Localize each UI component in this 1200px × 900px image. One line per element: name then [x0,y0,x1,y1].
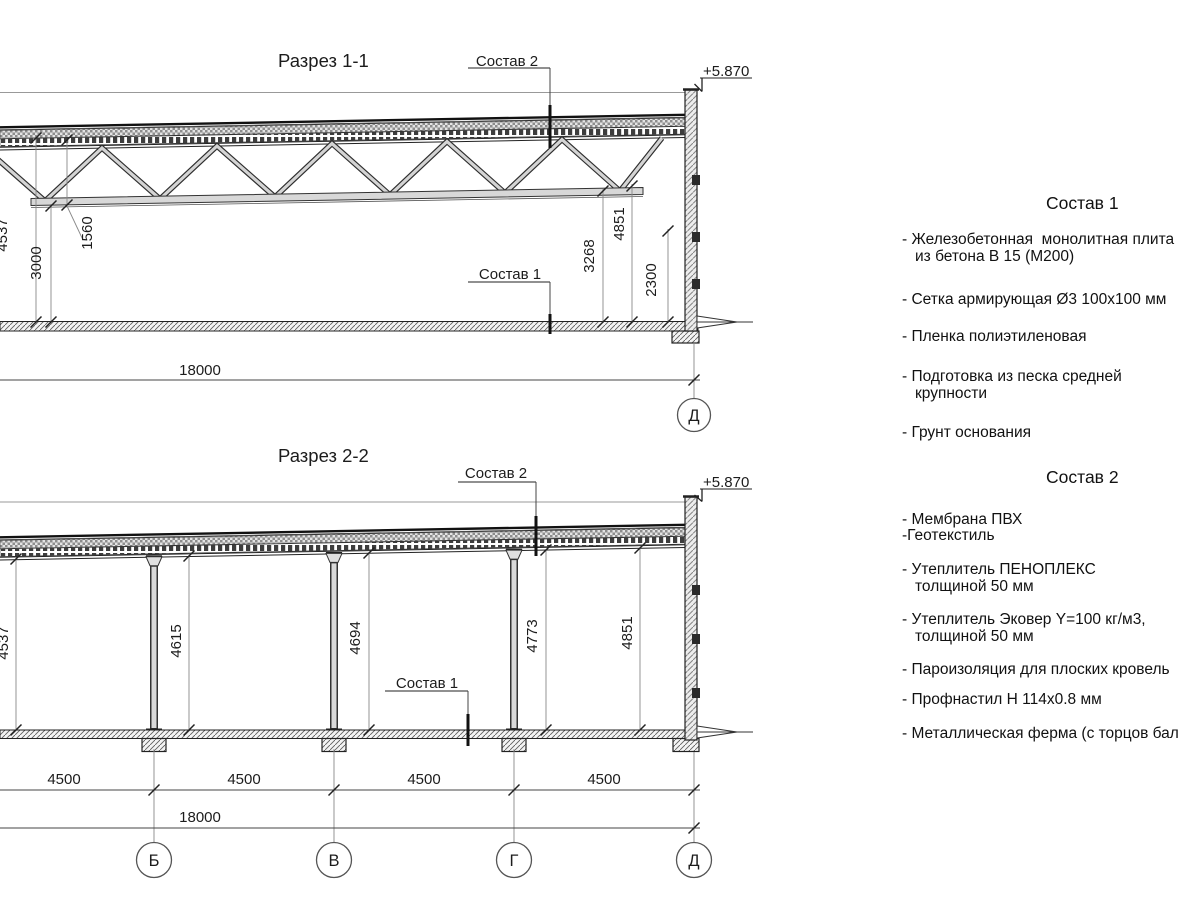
right-wall [683,497,753,741]
column-v [326,553,342,730]
composition-1-item: - Пленка полиэтиленовая [902,329,1087,346]
dim-4615: 4615 [168,624,185,657]
svg-text:Д: Д [688,407,699,425]
wall-panel-joint [692,634,700,644]
composition-2-title: Состав 2 [1046,467,1119,488]
extension-lines [16,547,694,843]
composition-1-item: - Подготовка из песка средней крупности [902,369,1122,402]
section-2-2: Состав 2 Состав 1 +5.870 [0,445,753,878]
sections-drawing-canvas: Состав 2 Состав 1 +5.870 [0,0,1200,900]
svg-text:Д: Д [688,852,699,870]
dim-span-3: 4500 [407,771,440,788]
roof-assembly [0,115,685,150]
composition-2-item: - Утеплитель Эковер Y=100 кг/м3, толщино… [902,612,1146,645]
composition-1-item: - Сетка армирующая Ø3 100х100 мм [902,292,1166,309]
roof-assembly [0,525,685,560]
floor-slab [0,322,699,344]
composition-1-item: - Грунт основания [902,425,1031,442]
composition-1-title: Состав 1 [1046,193,1119,214]
composition-2-item: - Металлическая ферма (с торцов бал [902,726,1179,743]
sostav2-label: Состав 2 [476,53,538,70]
dim-4537: 4537 [0,218,11,251]
axis-bubble-g: Г [497,843,532,878]
wall-panel-joint [692,175,700,185]
composition-1-item: - Железобетонная монолитная плита из бет… [902,232,1174,265]
sostav1-label: Состав 1 [396,675,458,692]
right-wall [683,90,753,332]
svg-text:Г: Г [510,852,519,870]
composition-2-item: -Геотекстиль [902,528,995,545]
elevation-mark: +5.870 [695,63,753,92]
dim-18000: 18000 [179,362,221,379]
elevation-value: +5.870 [703,63,749,80]
axis-bubble-b: Б [137,843,172,878]
wall-panel-joint [692,585,700,595]
svg-text:В: В [328,852,339,870]
composition-2-item: - Утеплитель ПЕНОПЛЕКС толщиной 50 мм [902,562,1096,595]
column-g [506,550,522,730]
dim-4851: 4851 [611,207,628,240]
dim-4773: 4773 [524,619,541,652]
dim-1560: 1560 [79,216,96,249]
composition-2-item: - Пароизоляция для плоских кровель [902,662,1170,679]
elevation-value: +5.870 [703,474,749,491]
wall-panel-joint [692,688,700,698]
wall-panel-joint [692,279,700,289]
sostav1-label: Состав 1 [479,266,541,283]
sostav2-label: Состав 2 [465,465,527,482]
wall-foundation-block [672,331,699,343]
section-1-1: Состав 2 Состав 1 +5.870 [0,50,753,432]
dim-span-4: 4500 [587,771,620,788]
section-1-1-title: Разрез 1-1 [278,50,369,71]
dim-span-1: 4500 [47,771,80,788]
svg-text:Б: Б [149,852,160,870]
roof-truss [0,138,662,208]
elevation-mark: +5.870 [695,474,753,502]
composition-2-item: - Профнастил Н 114х0.8 мм [902,692,1102,709]
axis-bubble-v: В [317,843,352,878]
wall-panel-joint [692,232,700,242]
column-b [146,556,162,729]
axis-bubble-d: Д [677,843,712,878]
axis-bubble-d: Д [678,399,711,432]
dim-4537: 4537 [0,626,12,659]
floor-slab [0,730,699,752]
dim-2300: 2300 [643,263,660,296]
dim-3000: 3000 [28,246,45,279]
columns [146,550,522,730]
dim-4851: 4851 [619,616,636,649]
section-2-2-title: Разрез 2-2 [278,445,369,466]
dim-span-2: 4500 [227,771,260,788]
dim-18000: 18000 [179,809,221,826]
dim-3268: 3268 [581,239,598,272]
dim-4694: 4694 [347,621,364,654]
truss-bottom-chord [31,188,643,206]
